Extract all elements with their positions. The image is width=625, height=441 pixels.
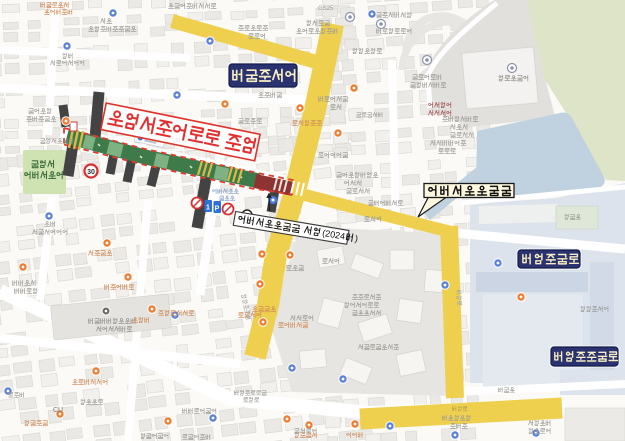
svg-text:30: 30 (87, 169, 95, 176)
svg-text:1: 1 (206, 205, 210, 212)
svg-text:CU: CU (53, 407, 63, 414)
svg-text:P: P (215, 206, 220, 213)
svg-text:GS25: GS25 (318, 6, 334, 12)
